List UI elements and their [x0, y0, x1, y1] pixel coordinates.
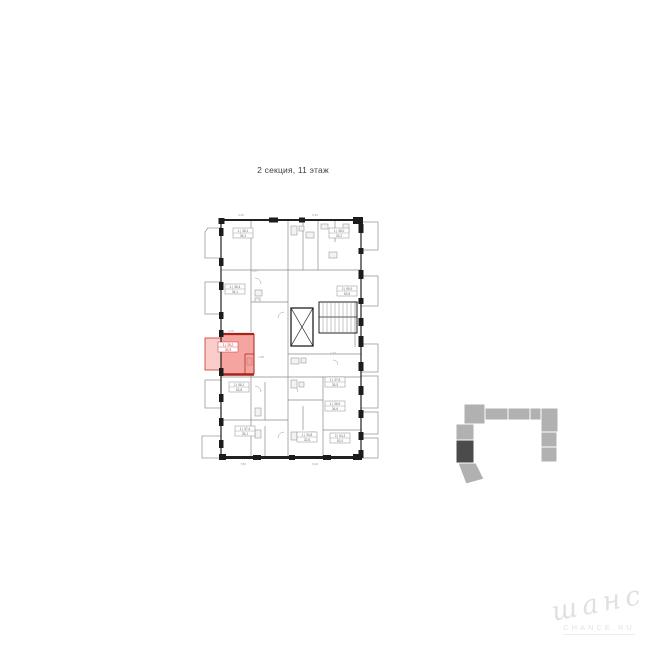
minimap-section[interactable]: [485, 408, 508, 420]
unit-plate: 2 | 55,953,6: [337, 286, 357, 296]
elevator-shaft: [291, 308, 313, 346]
stairs: [319, 302, 357, 333]
dimension-label: 6,90: [312, 462, 318, 466]
balcony-outline: [202, 436, 221, 458]
svg-text:53,6: 53,6: [344, 292, 350, 296]
svg-text:32,6: 32,6: [304, 438, 310, 442]
svg-text:2 | 55,9: 2 | 55,9: [342, 287, 353, 291]
unit-plate-highlighted: 1 | 35,233,9: [218, 342, 238, 352]
unit-plate: 1 | 36,434,1: [225, 284, 245, 294]
unit-plate: 1 | 37,835,5: [325, 377, 345, 387]
watermark: шанс CHANCE.RU: [544, 590, 654, 635]
unit-plate: 2 | 56,253,8: [229, 382, 249, 392]
balcony-outline: [361, 276, 378, 306]
minimap-section[interactable]: [464, 404, 485, 424]
dimension-label: 3,75: [228, 329, 234, 333]
highlighted-apartment[interactable]: [205, 334, 254, 375]
svg-text:1 | 37,4: 1 | 37,4: [240, 427, 251, 431]
svg-text:1 | 35,2: 1 | 35,2: [223, 343, 234, 347]
svg-text:35,5: 35,5: [332, 383, 338, 387]
svg-text:1 | 36,9: 1 | 36,9: [330, 402, 341, 406]
dimension-label: 5,32: [312, 213, 318, 217]
dimension-label: 6,48: [238, 213, 244, 217]
balcony-outline: [361, 438, 378, 458]
svg-text:2 | 56,2: 2 | 56,2: [234, 383, 245, 387]
svg-text:52,0: 52,0: [337, 439, 343, 443]
svg-text:1 | 38,1: 1 | 38,1: [238, 229, 249, 233]
minimap-section[interactable]: [541, 447, 557, 462]
balcony-outline: [205, 380, 221, 408]
balconies-right: [361, 222, 378, 458]
unit-plate: 1 | 37,435,1: [235, 426, 255, 436]
balcony-outline: [361, 222, 378, 250]
minimap-section[interactable]: [456, 424, 474, 440]
minimap-section[interactable]: [541, 432, 557, 447]
unit-plate: 1 | 35,033,2: [329, 228, 349, 238]
balcony-outline: [205, 228, 221, 258]
svg-text:33,9: 33,9: [225, 348, 231, 352]
svg-text:34,6: 34,6: [332, 407, 338, 411]
svg-text:34,1: 34,1: [232, 290, 238, 294]
unit-plate: 2 | 54,352,0: [330, 433, 350, 443]
minimap-blocks: [456, 404, 558, 484]
svg-text:35,1: 35,1: [242, 432, 248, 436]
svg-text:36,3: 36,3: [240, 234, 246, 238]
svg-text:2 | 54,3: 2 | 54,3: [335, 434, 346, 438]
minimap-section[interactable]: [530, 408, 541, 420]
watermark-script: шанс: [542, 580, 655, 627]
dimension-label: 1,77: [330, 351, 336, 355]
dimension-label: 7,80: [240, 462, 246, 466]
minimap-section[interactable]: [508, 408, 530, 420]
balcony-outline: [361, 412, 378, 434]
balcony-outline: [205, 282, 221, 314]
page-background: 2 секция, 11 этаж: [0, 0, 670, 670]
balcony-outline: [361, 344, 378, 372]
floor-title: 2 секция, 11 этаж: [0, 165, 586, 175]
floor-plan: 1 | 38,136,31 | 35,033,21 | 36,434,12 | …: [193, 212, 389, 472]
svg-text:1 | 35,0: 1 | 35,0: [334, 229, 345, 233]
svg-text:53,8: 53,8: [236, 388, 242, 392]
section-minimap: [452, 398, 564, 490]
dimension-label: 2,07: [252, 269, 258, 273]
balcony-outline: [361, 376, 378, 408]
unit-plate: 1 | 38,136,3: [233, 228, 253, 238]
highlighted-apartment-area[interactable]: [221, 334, 254, 375]
unit-plate: 1 | 34,832,6: [297, 432, 317, 442]
svg-text:1 | 34,8: 1 | 34,8: [302, 433, 313, 437]
minimap-selected-section[interactable]: [456, 440, 474, 463]
svg-text:1 | 37,8: 1 | 37,8: [330, 378, 341, 382]
dimension-label: 1,98: [258, 355, 264, 359]
svg-text:33,2: 33,2: [336, 234, 342, 238]
minimap-section[interactable]: [541, 408, 558, 432]
svg-text:1 | 36,4: 1 | 36,4: [230, 285, 241, 289]
minimap-section[interactable]: [458, 463, 484, 484]
unit-plate: 1 | 36,934,6: [325, 401, 345, 411]
watermark-caption: CHANCE.RU: [563, 623, 635, 635]
